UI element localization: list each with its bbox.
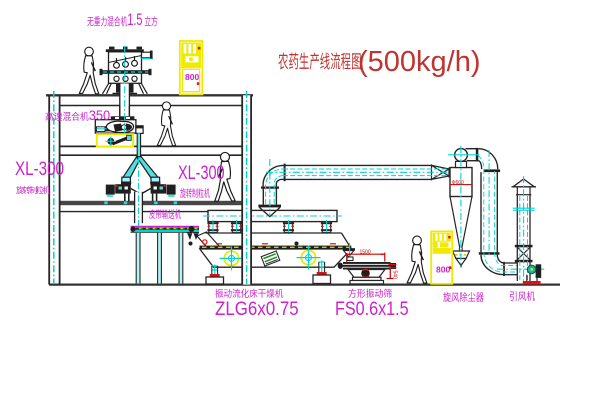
svg-text:800: 800: [436, 265, 450, 275]
svg-text:800: 800: [185, 72, 199, 82]
svg-text:540: 540: [392, 271, 398, 280]
svg-text:1500: 1500: [360, 249, 371, 255]
